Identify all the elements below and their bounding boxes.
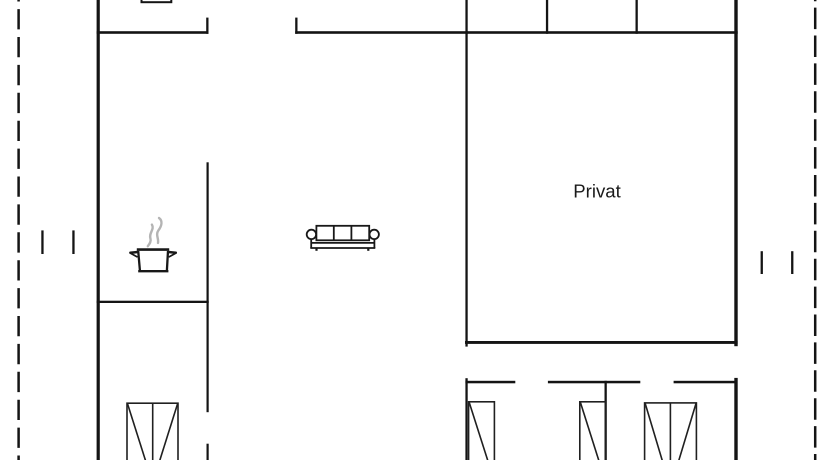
svg-text:Privat: Privat	[573, 180, 621, 201]
